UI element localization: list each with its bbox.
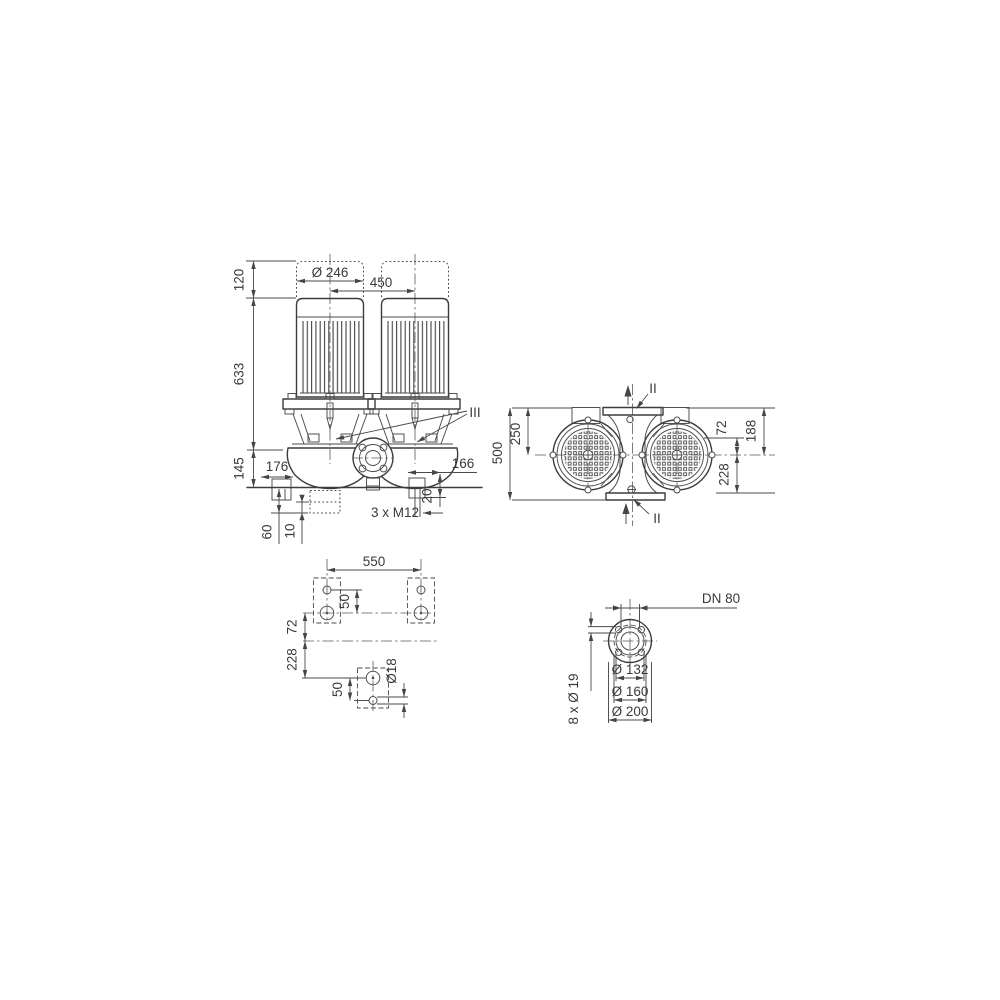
dim-228-foundation-label: 228 <box>285 648 300 671</box>
dim-550-label: 550 <box>363 554 386 569</box>
left-foot <box>272 479 291 500</box>
dim-160-label: Ø 160 <box>612 684 649 699</box>
flange-detail-view: DN 80 8 x Ø 19 Ø 132 Ø 160 Ø 200 <box>566 591 740 725</box>
dim-50-bottom-label: 50 <box>330 682 345 697</box>
dim-228-label: 228 <box>717 463 732 486</box>
dim-72-foundation-label: 72 <box>285 619 300 634</box>
dim-250-label: 250 <box>508 423 523 446</box>
dn80-label: DN 80 <box>702 591 740 606</box>
pump-dimensional-drawing-page: 120 633 145 Ø 246 450 176 166 20 3 x M12… <box>0 0 1000 1000</box>
dim-176-label: 176 <box>266 459 289 474</box>
top-view: 500 250 72 228 188 II II <box>490 381 775 526</box>
dim-500-label: 500 <box>490 442 505 465</box>
foundation-plan-view: 550 50 72 228 50 <box>285 554 438 718</box>
motor-cooling-fins <box>300 321 360 393</box>
dim-18-label: Ø18 <box>384 658 399 684</box>
dim-10-label: 10 <box>283 523 298 538</box>
flow-arrow-top <box>624 385 631 397</box>
suction-flange-top-view <box>606 493 665 500</box>
dim-72-label: 72 <box>714 420 729 435</box>
tapped-holes-label: 3 x M12 <box>371 505 419 520</box>
flow-arrow-bottom <box>622 503 629 514</box>
discharge-flange <box>603 408 663 416</box>
dim-145-label: 145 <box>232 457 247 480</box>
section-ii-top-label: II <box>649 381 657 396</box>
bolt-holes-label: 8 x Ø 19 <box>566 673 581 724</box>
dim-200-label: Ø 200 <box>612 704 649 719</box>
dim-50-top-label: 50 <box>337 594 352 609</box>
dim-60-label: 60 <box>260 524 275 539</box>
front-view: 120 633 145 Ø 246 450 176 166 20 3 x M12… <box>232 254 483 544</box>
dim-120-label: 120 <box>232 269 247 292</box>
dim-166-label: 166 <box>452 456 475 471</box>
drain-plug <box>367 478 380 490</box>
section-ii-bottom-label: II <box>653 511 661 526</box>
fan-cover <box>550 408 626 494</box>
dim-633-label: 633 <box>232 363 247 386</box>
dim-246-label: Ø 246 <box>312 265 349 280</box>
motor-flange-bar <box>283 399 375 409</box>
technical-drawing: 120 633 145 Ø 246 450 176 166 20 3 x M12… <box>0 0 1000 1000</box>
dim-20-label: 20 <box>420 488 435 503</box>
dim-188-label: 188 <box>744 420 759 443</box>
section-iii-label: III <box>469 405 480 420</box>
dim-132-label: Ø 132 <box>612 662 649 677</box>
dim-450-label: 450 <box>370 275 393 290</box>
